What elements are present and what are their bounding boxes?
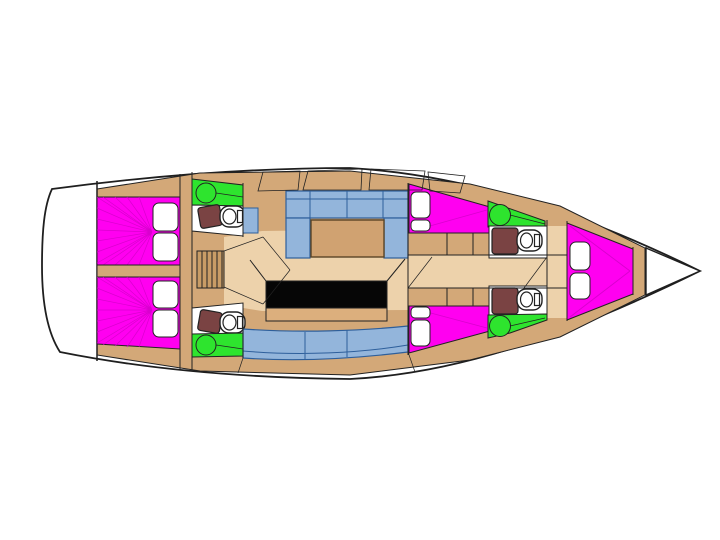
berth-pillow bbox=[411, 220, 430, 231]
aft-cabin-divider bbox=[97, 265, 180, 277]
berth-pillow bbox=[411, 307, 430, 318]
berth-pillow bbox=[570, 242, 590, 270]
companionway-stairs bbox=[197, 251, 224, 288]
settee-left-arm bbox=[286, 218, 310, 258]
head-cabinet-seat bbox=[492, 288, 518, 314]
berth-pillow bbox=[153, 203, 178, 231]
head-cabinet-seat bbox=[197, 204, 222, 229]
plan-canvas bbox=[0, 0, 720, 540]
shower-basin-icon bbox=[490, 205, 511, 226]
bow-locker bbox=[646, 248, 700, 295]
berth-pillow bbox=[153, 233, 178, 261]
shower-basin-icon bbox=[196, 183, 216, 203]
aft-head-starboard bbox=[192, 303, 245, 357]
galley-counter-black bbox=[266, 281, 387, 308]
berth-pillow bbox=[153, 281, 178, 308]
starboard-bench bbox=[243, 326, 408, 360]
settee-right-arm bbox=[384, 218, 408, 258]
aft-cabin-starboard bbox=[97, 277, 180, 349]
shower-basin-icon bbox=[490, 316, 511, 337]
washbasin bbox=[243, 208, 258, 233]
aft-cabin-port bbox=[97, 197, 180, 265]
toilet-icon bbox=[517, 230, 542, 251]
shower-basin-icon bbox=[196, 335, 216, 355]
berth-pillow bbox=[570, 273, 590, 299]
berth-pillow bbox=[411, 192, 430, 218]
salon-table bbox=[311, 220, 384, 257]
yacht-floor-plan bbox=[0, 0, 720, 540]
forward-walkway-floor bbox=[547, 226, 567, 318]
corridor-floor bbox=[408, 255, 567, 288]
toilet-icon bbox=[220, 312, 245, 333]
head-cabinet-seat bbox=[492, 228, 518, 254]
berth-pillow bbox=[153, 310, 178, 337]
toilet-icon bbox=[220, 206, 245, 227]
berth-pillow bbox=[411, 320, 430, 346]
toilet-icon bbox=[517, 289, 542, 310]
galley-worktop bbox=[266, 308, 387, 321]
head-cabinet-seat bbox=[197, 309, 222, 334]
